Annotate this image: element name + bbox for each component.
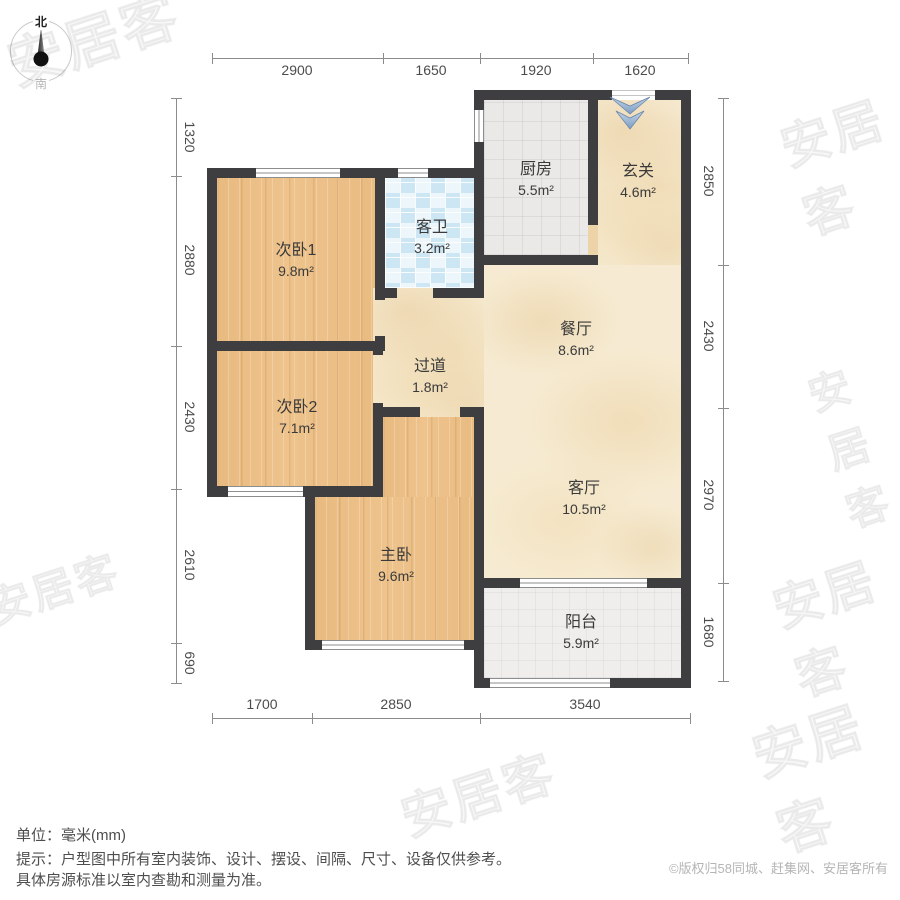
wall <box>383 407 420 417</box>
window <box>474 110 484 142</box>
room-name: 次卧2 <box>277 398 318 419</box>
room-name: 次卧1 <box>276 241 317 262</box>
window <box>398 168 428 178</box>
dim-right-4: 1680 <box>701 616 717 647</box>
dim-bottom-2: 2850 <box>380 696 411 712</box>
wall <box>588 100 598 225</box>
wall <box>474 178 484 298</box>
room-area: 8.6m² <box>558 341 594 359</box>
room-name: 厨房 <box>518 160 554 181</box>
wall <box>207 341 383 351</box>
footer-unit-line: 单位：毫米(mm) <box>16 824 126 845</box>
room-name: 过道 <box>412 357 448 378</box>
room-area: 5.5m² <box>518 181 554 199</box>
room-label-master: 主卧 9.6m² <box>378 546 414 585</box>
room-area: 10.5m² <box>562 500 606 518</box>
wall <box>375 288 397 298</box>
wall <box>305 486 315 650</box>
compass-north-label: 北 <box>33 13 49 30</box>
room-label-kitchen: 厨房 5.5m² <box>518 160 554 199</box>
footer-tip-line1: 提示：户型图中所有室内装饰、设计、摆设、间隔、尺寸、设备仅供参考。 <box>16 848 511 869</box>
room-area: 1.8m² <box>412 378 448 396</box>
room-label-bathroom: 客卫 3.2m² <box>414 218 450 257</box>
compass: 北 南 <box>8 12 74 86</box>
wall <box>681 90 691 688</box>
wall <box>474 578 520 588</box>
room-label-hallway: 过道 1.8m² <box>412 357 448 396</box>
wall <box>207 168 484 178</box>
wall <box>474 255 598 265</box>
dim-right-1: 2850 <box>701 165 717 196</box>
room-area: 4.6m² <box>620 183 656 201</box>
dim-left-2: 2880 <box>182 244 198 275</box>
dim-top-4: 1620 <box>624 62 655 78</box>
window <box>228 486 303 497</box>
room-name: 餐厅 <box>558 320 594 341</box>
wall <box>373 351 383 355</box>
wall <box>373 403 383 497</box>
dim-left-1: 1320 <box>182 121 198 152</box>
room-name: 玄关 <box>620 162 656 183</box>
balcony-sliding-door <box>520 578 647 588</box>
dim-left-5: 690 <box>182 651 198 674</box>
room-area: 9.8m² <box>276 262 317 280</box>
window <box>322 640 464 650</box>
window <box>256 168 340 178</box>
dim-top-1: 2900 <box>281 62 312 78</box>
dim-top-2: 1650 <box>415 62 446 78</box>
room-name: 客厅 <box>562 479 606 500</box>
room-label-living: 客厅 10.5m² <box>562 479 606 518</box>
dim-left-4: 2610 <box>182 549 198 580</box>
window <box>490 678 610 688</box>
footer-tip-line2: 具体房源标准以室内查勘和测量为准。 <box>16 869 271 890</box>
dim-left-3: 2430 <box>182 401 198 432</box>
wall <box>460 407 484 417</box>
wall <box>433 288 484 298</box>
room-area: 3.2m² <box>414 239 450 257</box>
wall <box>207 168 217 497</box>
wall <box>647 578 691 588</box>
room-area: 5.9m² <box>563 634 599 652</box>
dimension-lines <box>0 0 900 900</box>
entry-arrow-icon <box>606 96 654 132</box>
wall <box>375 178 385 300</box>
wall <box>474 90 612 100</box>
room-label-bedroom1: 次卧1 9.8m² <box>276 241 317 280</box>
dim-bottom-1: 1700 <box>246 696 277 712</box>
floorplan-page: 2900 1650 1920 1620 1700 2850 3540 1320 … <box>0 0 900 900</box>
room-label-dining: 餐厅 8.6m² <box>558 320 594 359</box>
room-label-balcony: 阳台 5.9m² <box>563 613 599 652</box>
dim-top-3: 1920 <box>520 62 551 78</box>
room-name: 客卫 <box>414 218 450 239</box>
room-area: 9.6m² <box>378 567 414 585</box>
room-label-bedroom2: 次卧2 7.1m² <box>277 398 318 437</box>
room-name: 主卧 <box>378 546 414 567</box>
compass-south-label: 南 <box>33 75 49 92</box>
dim-right-2: 2430 <box>701 320 717 351</box>
room-name: 阳台 <box>563 613 599 634</box>
room-area: 7.1m² <box>277 419 318 437</box>
room-label-entry: 玄关 4.6m² <box>620 162 656 201</box>
dim-right-3: 2970 <box>701 479 717 510</box>
dim-bottom-3: 3540 <box>569 696 600 712</box>
footer-copyright: ©版权归58同城、赶集网、安居客所有 <box>669 858 888 877</box>
